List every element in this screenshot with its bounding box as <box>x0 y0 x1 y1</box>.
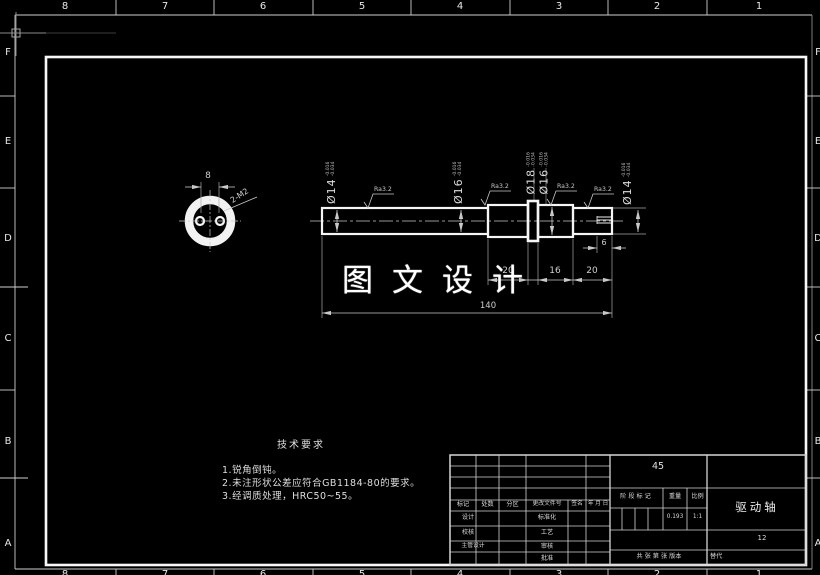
drawing-frame <box>46 57 806 565</box>
dia-label: Ø14 -0.016-0.034 <box>324 148 338 204</box>
zone-label: 2 <box>651 570 663 575</box>
dim-seg-b: 16 <box>547 267 563 276</box>
zone-label: 7 <box>159 2 171 12</box>
zone-label: D <box>812 234 820 244</box>
tb-weight-label: 重量 <box>664 494 686 500</box>
tb-role-label: 校核 <box>451 530 485 536</box>
tb-sheet-info: 共 张 第 张 版本 <box>612 554 706 560</box>
tech-req-item: 1.锐角倒钝。 <box>222 466 282 476</box>
zone-label: E <box>2 137 14 147</box>
zone-label: 2 <box>651 2 663 12</box>
surface-finish-label: Ra3.2 <box>594 187 612 193</box>
tb-rev-header: 年 月 日 <box>587 502 609 508</box>
dim-hole-spacing: 8 <box>200 172 216 181</box>
zone-label: 8 <box>59 570 71 575</box>
watermark: 图文设计 <box>342 266 542 297</box>
tb-weight-value: 0.193 <box>664 515 686 521</box>
tb-part-name: 驱动轴 <box>710 502 804 514</box>
tb-role-label: 审核 <box>527 544 567 550</box>
tech-req-heading: 技术要求 <box>277 441 325 451</box>
dia-label: Ø18 -0.016-0.034 <box>525 139 538 195</box>
tb-role-label: 标准化 <box>527 515 567 521</box>
dim-total-length: 140 <box>474 302 502 311</box>
zone-label: F <box>812 48 820 58</box>
zone-label: C <box>2 334 14 344</box>
tb-rev-header: 更改文件号 <box>527 502 567 508</box>
dim-seg-c: 20 <box>584 267 600 276</box>
thread-lines <box>597 216 611 224</box>
zone-label: F <box>2 48 14 58</box>
zone-label: A <box>2 539 14 549</box>
surface-finish-label: Ra3.2 <box>557 184 575 190</box>
zone-label: 4 <box>454 570 466 575</box>
zone-label: D <box>2 234 14 244</box>
dia-label: Ø16 -0.016-0.034 <box>451 148 465 204</box>
tb-scale-value: 1:1 <box>688 515 707 521</box>
zone-label: C <box>812 334 820 344</box>
zone-label: 3 <box>553 2 565 12</box>
zone-label: 6 <box>257 2 269 12</box>
cad-canvas: 8 7 6 5 4 3 2 1 8 7 6 5 4 3 2 1 F E D C … <box>0 0 820 575</box>
tb-role-label: 设计 <box>451 515 485 521</box>
tb-rev-header: 分区 <box>500 502 525 508</box>
dia-label: Ø16 -0.016-0.034 <box>538 139 551 195</box>
tb-scale-label: 比例 <box>688 494 707 500</box>
zone-label: 1 <box>753 2 765 12</box>
zone-label: 6 <box>257 570 269 575</box>
zone-label: 8 <box>59 2 71 12</box>
zone-label: 4 <box>454 2 466 12</box>
surface-finish-label: Ra3.2 <box>491 184 509 190</box>
tb-rev-header: 签名 <box>569 502 585 508</box>
zone-label: 7 <box>159 570 171 575</box>
tb-rev-header: 处数 <box>477 502 498 508</box>
tb-stage-label: 阶段标记 <box>611 494 662 500</box>
zone-label: 5 <box>356 2 368 12</box>
tech-req-item: 2.未注形状公差应符合GB1184-80的要求。 <box>222 479 420 489</box>
tb-rev-header: 标记 <box>451 502 475 508</box>
tech-req-item: 3.经调质处理，HRC50~55。 <box>222 492 358 502</box>
tb-drawing-no: 12 <box>744 535 780 542</box>
dim-thread-len: 6 <box>598 239 610 247</box>
tb-role-label: 主管设计 <box>449 544 497 550</box>
zone-label: 3 <box>553 570 565 575</box>
tb-replace-label: 替代 <box>710 554 722 560</box>
zone-label: B <box>2 437 14 447</box>
tb-material: 45 <box>640 462 676 472</box>
crosshair-cursor <box>0 12 116 56</box>
zone-label: 1 <box>753 570 765 575</box>
surface-finish-label: Ra3.2 <box>374 187 392 193</box>
tb-role-label: 批准 <box>527 556 567 562</box>
dia-label: Ø14 -0.016-0.034 <box>620 149 634 205</box>
zone-label: A <box>812 539 820 549</box>
zone-label: E <box>812 137 820 147</box>
zone-label: 5 <box>356 570 368 575</box>
tb-role-label: 工艺 <box>527 530 567 536</box>
zone-label: B <box>812 437 820 447</box>
